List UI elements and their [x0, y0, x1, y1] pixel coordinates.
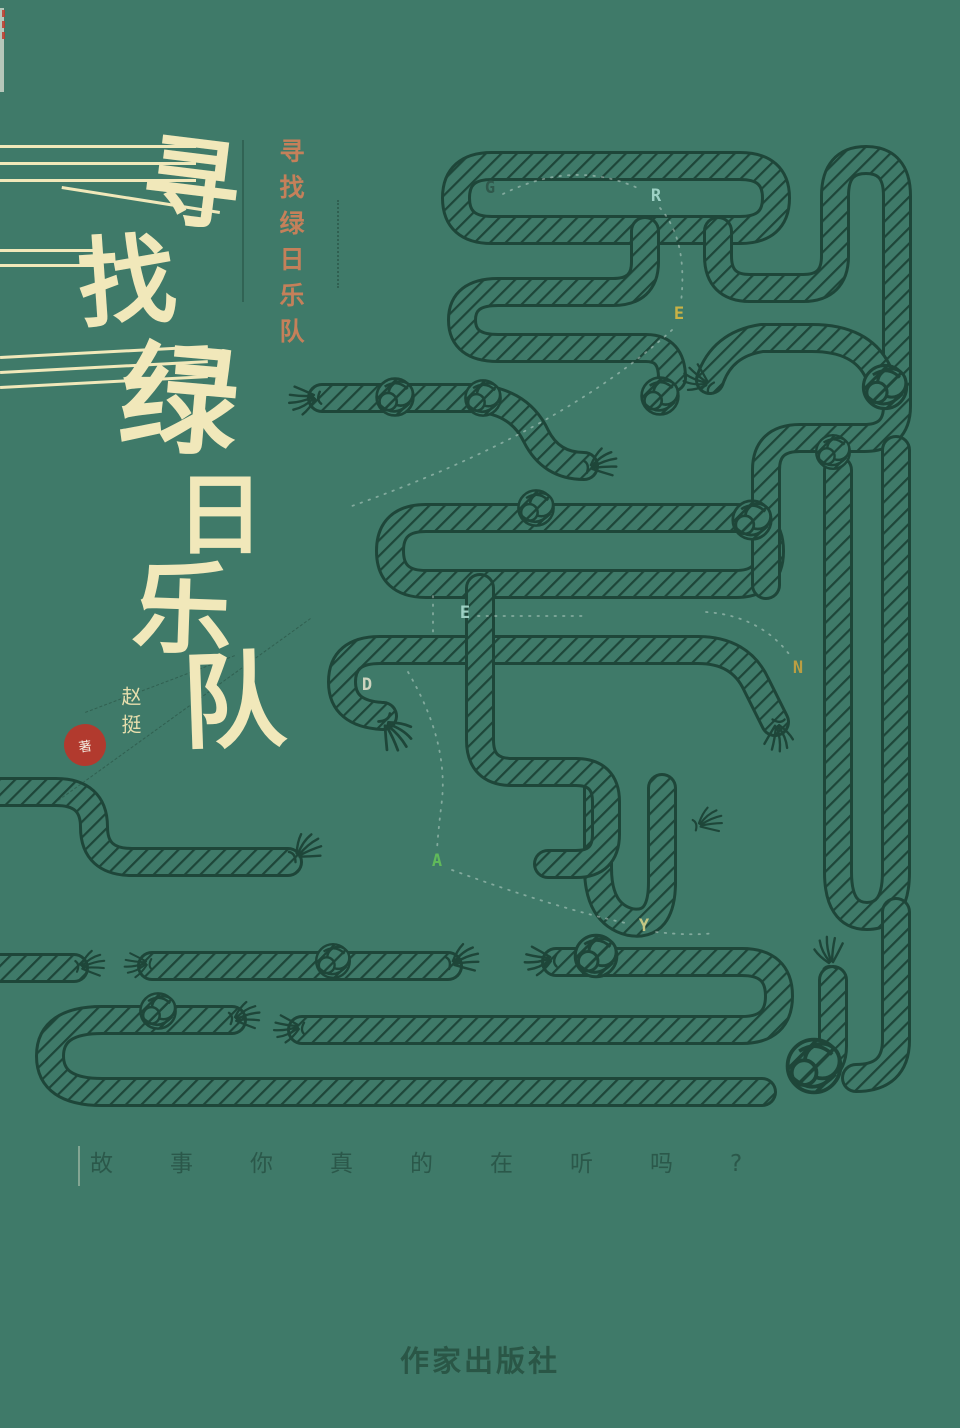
rope-knot: [575, 935, 617, 977]
title-char-3: 绿: [115, 337, 243, 465]
edge-artifact: [2, 10, 5, 17]
hidden-letter-D: D: [362, 675, 372, 695]
hidden-letter-G: G: [485, 178, 495, 198]
hidden-letter-E: E: [460, 603, 470, 623]
edge-artifact: [2, 32, 5, 39]
rope-knot: [465, 380, 500, 415]
rope-segment: [710, 338, 878, 380]
hidden-letter-E: E: [674, 304, 684, 324]
title-char-6: 队: [180, 648, 288, 756]
title-char-4: 日: [176, 472, 264, 560]
rope-segment: [390, 518, 770, 584]
rope-segment: [342, 650, 775, 722]
rope-knot: [518, 490, 553, 525]
rope-segment: [0, 792, 288, 862]
rope-knot: [816, 435, 850, 469]
hidden-letter-Y: Y: [639, 916, 650, 936]
book-cover: GREENDAY 寻找绿日乐队 寻找绿日乐队 赵挺 著 故事你真的在听吗? 作家…: [0, 0, 960, 1428]
rope-knot: [140, 993, 175, 1028]
rope-knot: [377, 379, 414, 416]
rope-knot: [863, 365, 906, 408]
subtitle-vertical: 寻找绿日乐队: [272, 138, 308, 354]
rope-segment: [856, 912, 896, 1078]
hidden-letter-N: N: [793, 658, 803, 678]
rope-knot: [642, 378, 679, 415]
rope-knot: [316, 944, 350, 978]
dotted-guide: [408, 672, 443, 850]
rope-segment: [838, 450, 896, 916]
hidden-letter-A: A: [432, 851, 442, 871]
tagline: 故事你真的在听吗?: [90, 1144, 799, 1178]
rope-knot: [788, 1040, 841, 1093]
subtitle-dotted-line: [337, 200, 339, 288]
seal-character: 著: [77, 735, 93, 756]
edge-artifact: [2, 21, 5, 28]
rope-hand-end: [691, 805, 724, 836]
rope-hand-end: [814, 936, 843, 969]
hidden-letter-R: R: [651, 186, 662, 206]
rope-knot: [733, 501, 771, 539]
tagline-tick-mark: [78, 1146, 80, 1186]
author-name: 赵挺: [116, 686, 145, 742]
publisher-logotype: 作家出版社: [330, 1338, 630, 1380]
rope-segment: [322, 398, 584, 466]
dotted-guide: [656, 932, 714, 934]
title-char-2: 找: [75, 231, 180, 336]
